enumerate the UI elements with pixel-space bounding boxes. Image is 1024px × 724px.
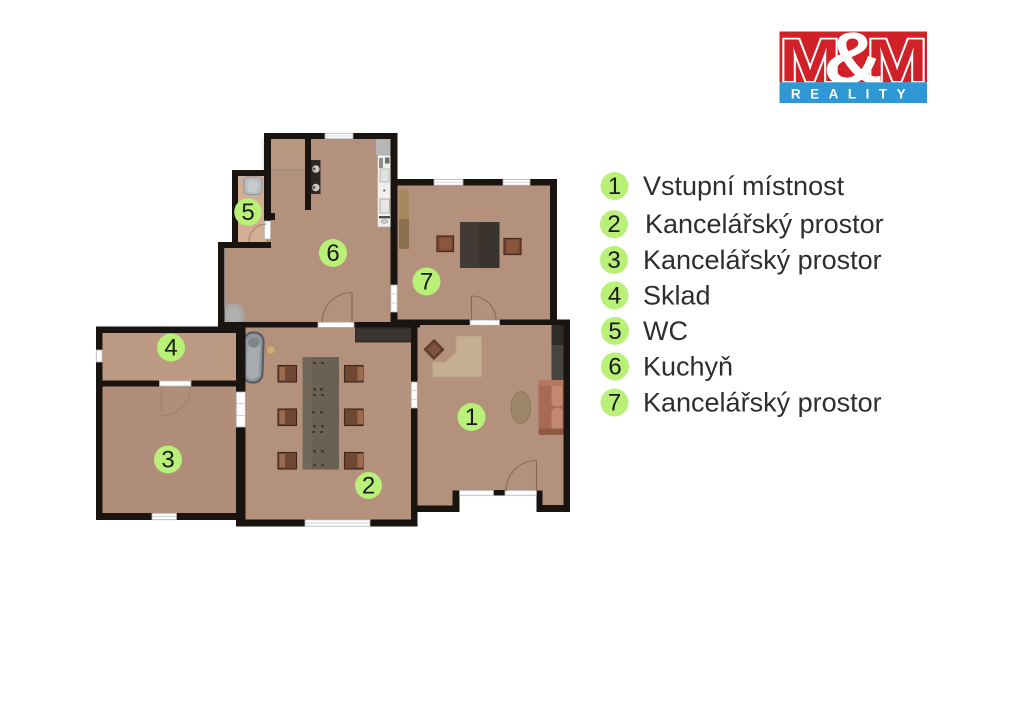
svg-text:7: 7 (420, 269, 433, 296)
svg-text:4: 4 (164, 335, 177, 362)
svg-text:Kuchyň: Kuchyň (643, 351, 733, 381)
svg-text:1: 1 (608, 173, 621, 200)
svg-text:7: 7 (608, 390, 621, 417)
svg-text:REALITY: REALITY (791, 86, 915, 101)
svg-text:4: 4 (608, 282, 621, 309)
svg-text:Sklad: Sklad (643, 280, 711, 310)
svg-text:3: 3 (607, 247, 620, 274)
svg-text:2: 2 (362, 473, 375, 500)
svg-text:2: 2 (607, 211, 620, 238)
svg-text:WC: WC (643, 316, 688, 346)
svg-text:Kancelářský prostor: Kancelářský prostor (643, 245, 882, 275)
svg-text:Vstupní místnost: Vstupní místnost (643, 171, 845, 201)
svg-text:Kancelářský prostor: Kancelářský prostor (645, 209, 884, 239)
svg-text:5: 5 (608, 318, 621, 345)
svg-text:6: 6 (608, 353, 621, 380)
svg-text:1: 1 (465, 404, 478, 431)
svg-text:5: 5 (241, 199, 254, 226)
svg-text:3: 3 (161, 447, 174, 474)
svg-text:Kancelářský prostor: Kancelářský prostor (643, 388, 882, 418)
svg-text:6: 6 (326, 240, 339, 267)
